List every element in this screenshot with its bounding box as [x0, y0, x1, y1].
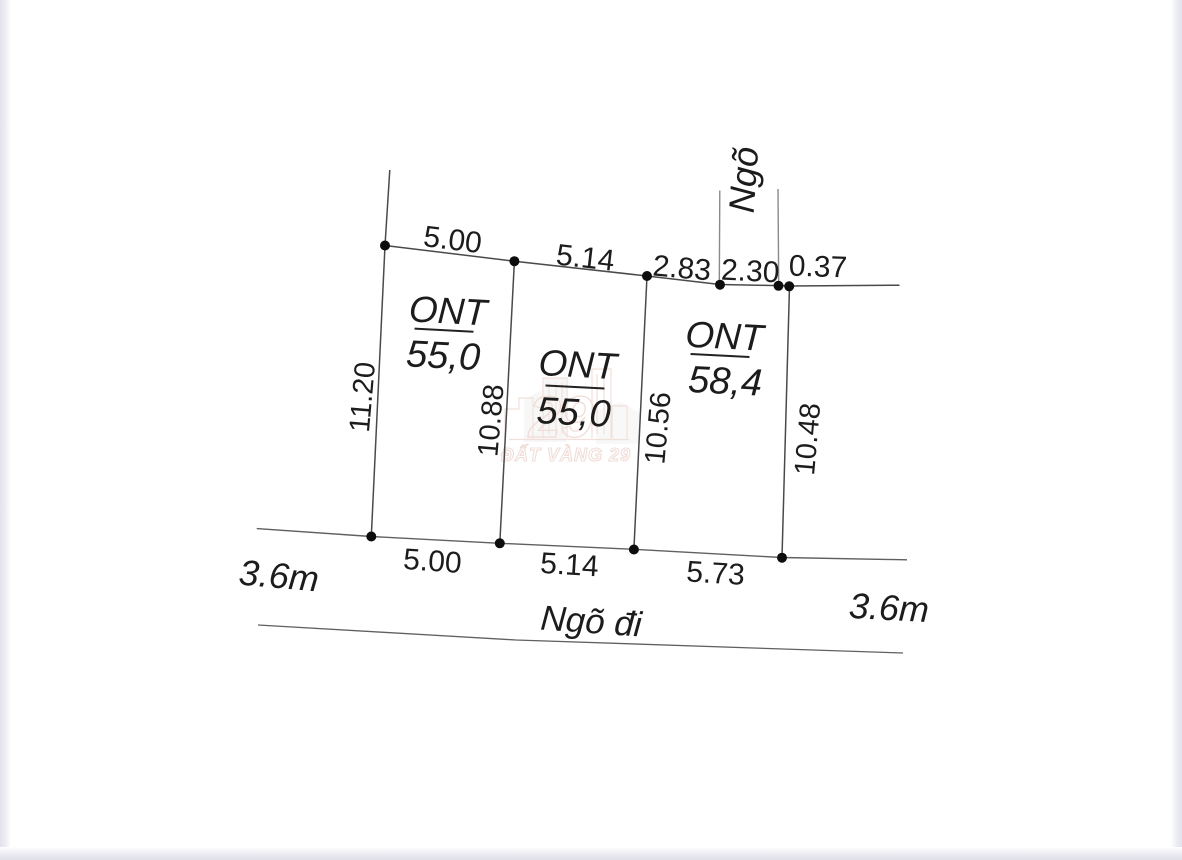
svg-text:55,0: 55,0 — [536, 390, 612, 436]
svg-text:ONT: ONT — [538, 342, 621, 387]
svg-text:ĐẤT VÀNG 29: ĐẤT VÀNG 29 — [501, 444, 631, 465]
svg-text:55,0: 55,0 — [405, 333, 481, 379]
svg-text:ONT: ONT — [408, 288, 491, 333]
svg-text:5.14: 5.14 — [554, 238, 616, 277]
svg-text:0.37: 0.37 — [788, 249, 848, 284]
svg-text:5.00: 5.00 — [422, 220, 484, 260]
svg-text:10.88: 10.88 — [472, 383, 510, 458]
svg-text:5.00: 5.00 — [402, 543, 463, 580]
svg-text:2.83: 2.83 — [651, 250, 712, 288]
svg-text:Ngõ đi: Ngõ đi — [539, 599, 644, 645]
svg-text:3.6m: 3.6m — [237, 552, 320, 600]
svg-text:11.20: 11.20 — [344, 361, 382, 434]
svg-text:2.30: 2.30 — [720, 253, 780, 289]
svg-text:10.56: 10.56 — [639, 391, 677, 466]
svg-text:10.48: 10.48 — [789, 402, 827, 477]
svg-text:3.6m: 3.6m — [848, 585, 930, 630]
svg-text:5.14: 5.14 — [539, 547, 599, 584]
svg-text:5.73: 5.73 — [685, 555, 745, 592]
svg-text:Ngõ: Ngõ — [721, 145, 767, 214]
svg-text:ONT: ONT — [684, 314, 767, 359]
svg-text:58,4: 58,4 — [687, 359, 763, 405]
